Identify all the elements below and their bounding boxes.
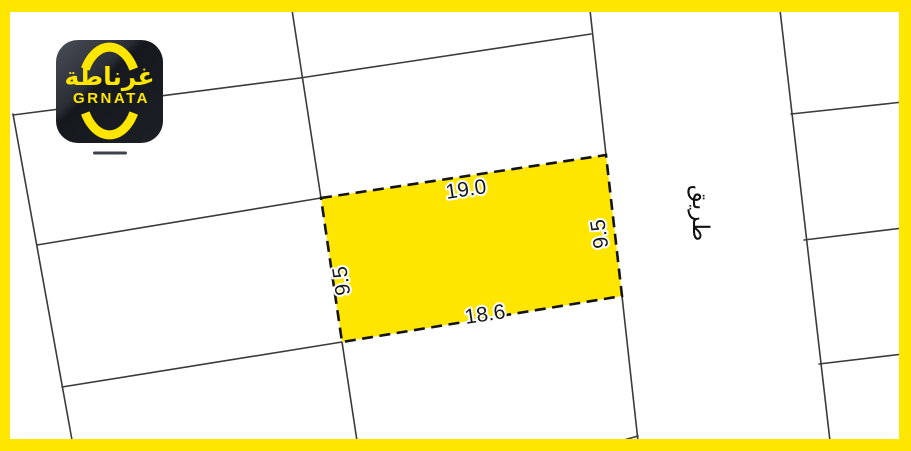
frame-bottom (0, 439, 911, 451)
grnata-logo: غرناطة GRNATA (56, 40, 163, 143)
plot-map: 19.0 18.6 9.5 9.5 طريق غرناطة GRNATA (0, 0, 911, 451)
dim-label-right: 9.5 (586, 218, 613, 250)
road-label: طريق (687, 185, 713, 242)
logo-underline (93, 152, 127, 155)
boundary-mid-column-east-upper (590, 10, 606, 155)
boundary-divider-to-plot-top (37, 198, 321, 245)
boundary-right-divider-1 (791, 102, 903, 114)
boundary-mid-column-west-lower (342, 342, 357, 441)
frame-top (0, 0, 911, 12)
boundary-mid-column-west-upper (292, 10, 321, 198)
boundary-right-divider-2 (804, 228, 903, 240)
boundary-right-divider-3 (819, 354, 903, 364)
boundary-mid-column-east-lower (622, 296, 638, 441)
logo-arabic-text: غرناطة (64, 62, 154, 92)
dim-label-bottom: 18.6 (463, 300, 507, 329)
boundary-right-column-west (780, 10, 830, 441)
dim-label-left: 9.5 (328, 265, 355, 297)
boundary-left-column-west (13, 114, 72, 440)
frame-right (899, 0, 911, 451)
frame-left (0, 0, 10, 451)
boundary-divider-to-plot-bottom (62, 342, 342, 387)
logo-latin-text: GRNATA (73, 90, 150, 107)
map-canvas: 19.0 18.6 9.5 9.5 طريق غرناطة GRNATA (0, 0, 911, 451)
